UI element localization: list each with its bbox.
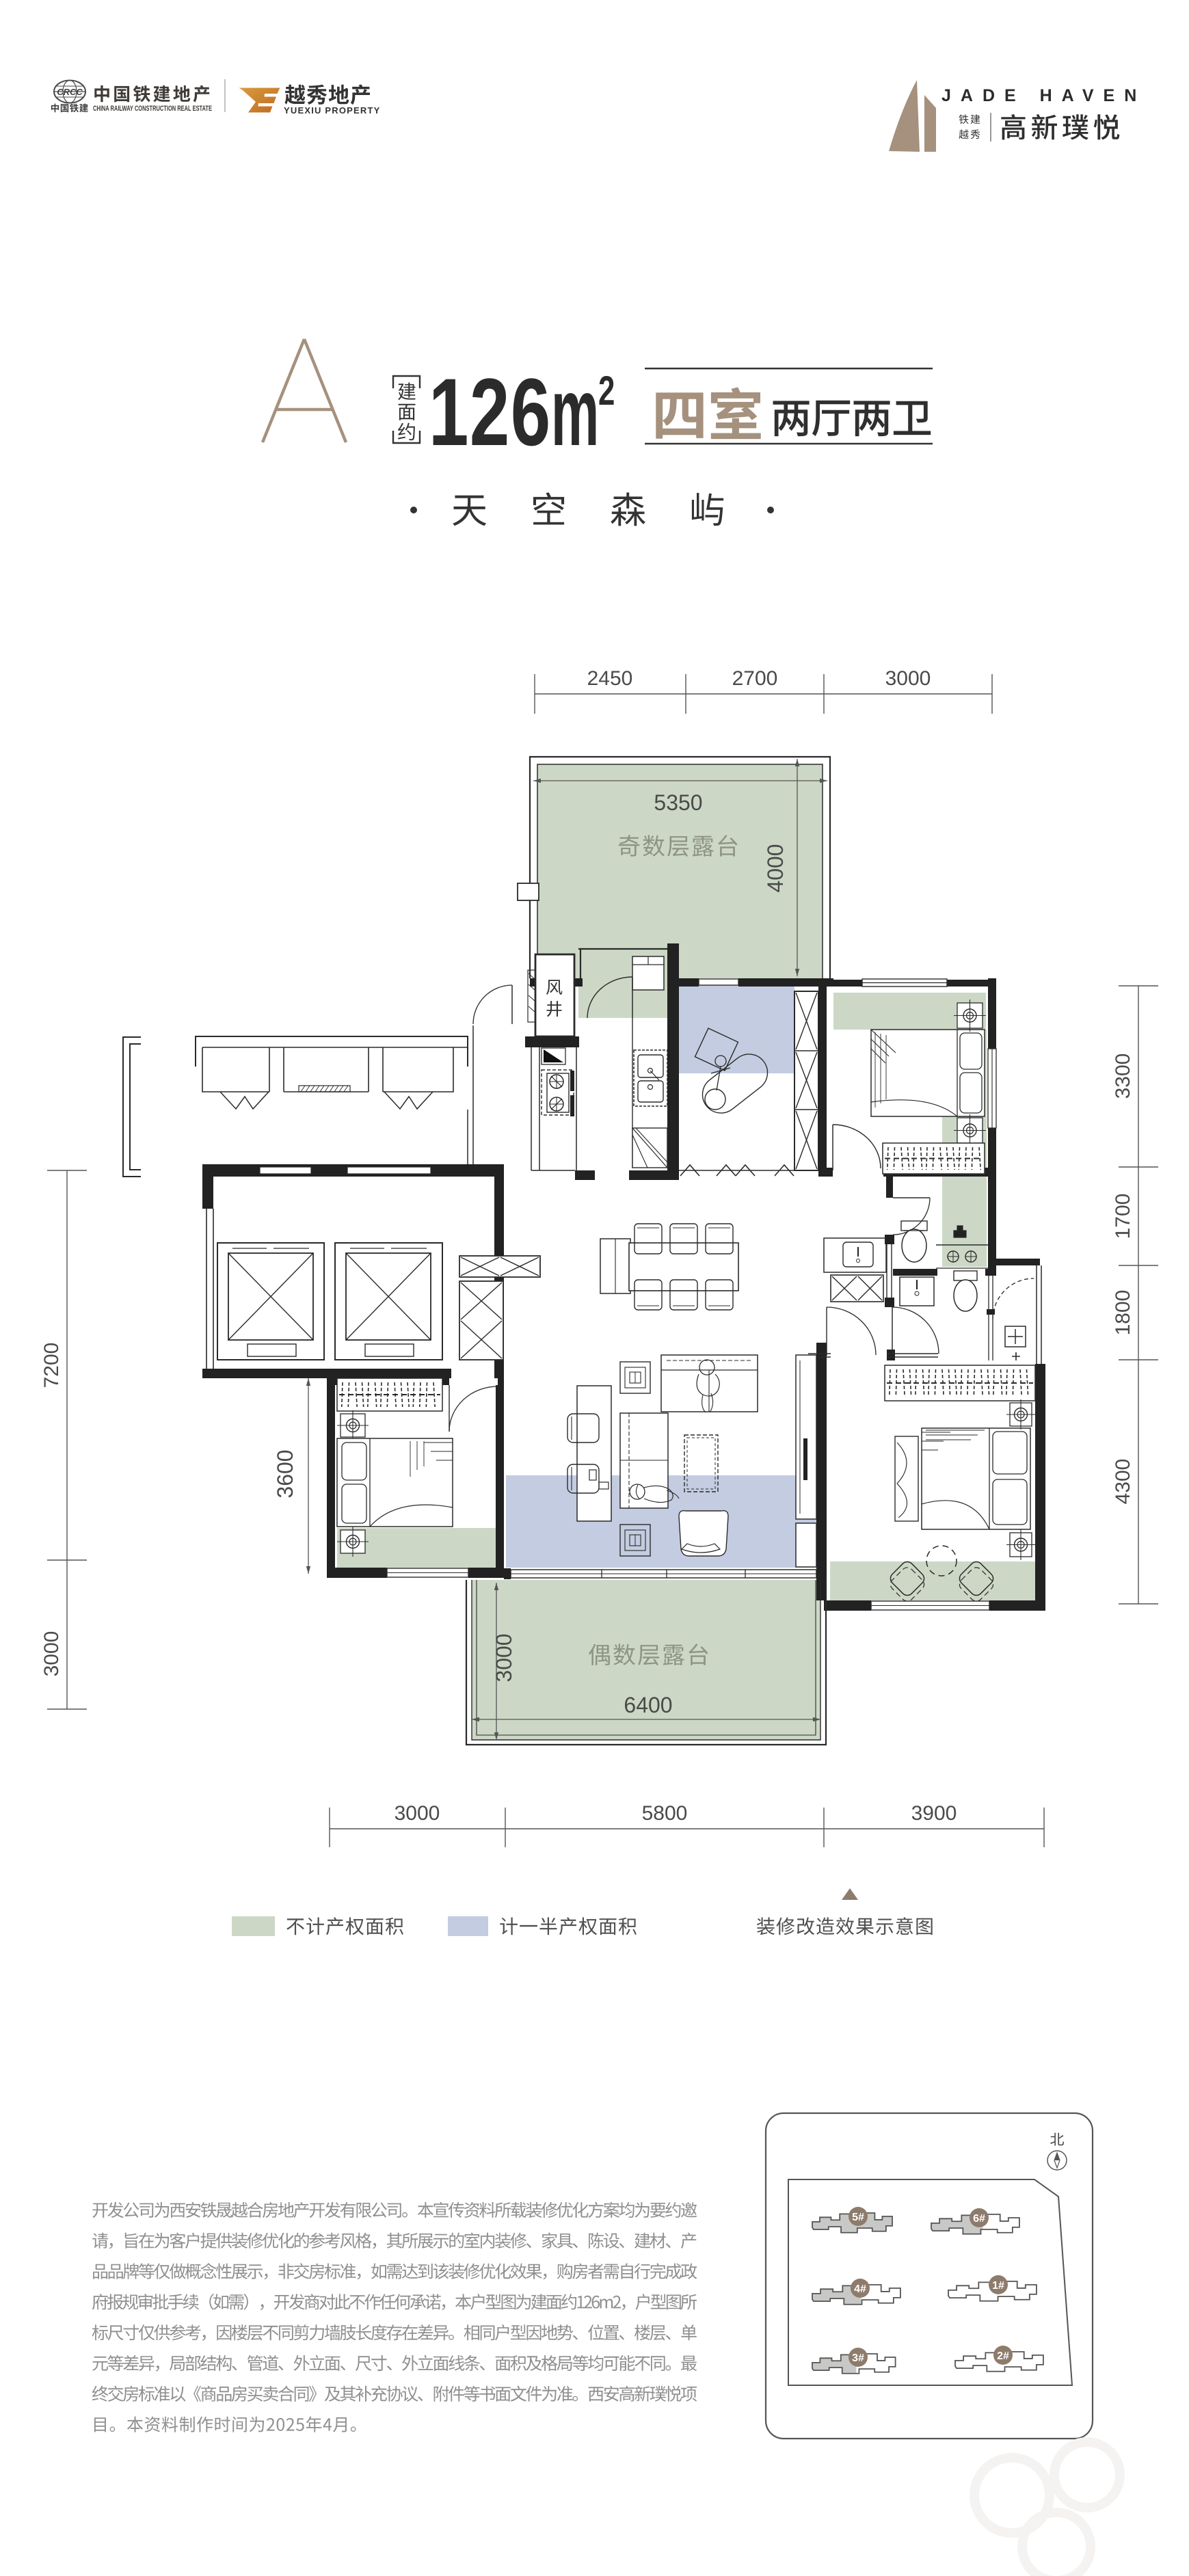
svg-text:1#: 1# — [992, 2280, 1004, 2292]
svg-text:4#: 4# — [854, 2283, 866, 2295]
svg-text:126: 126 — [429, 359, 552, 466]
svg-text:5350: 5350 — [654, 790, 702, 815]
svg-text:7200: 7200 — [40, 1343, 63, 1388]
svg-text:2700: 2700 — [732, 667, 778, 690]
svg-text:2450: 2450 — [587, 667, 633, 690]
svg-text:2#: 2# — [997, 2350, 1009, 2362]
svg-text:3000: 3000 — [395, 1802, 440, 1825]
svg-text:3600: 3600 — [273, 1449, 297, 1498]
svg-text:3000: 3000 — [492, 1633, 516, 1682]
svg-text:2: 2 — [598, 368, 615, 414]
svg-text:YUEXIU PROPERTY: YUEXIU PROPERTY — [284, 105, 381, 116]
svg-text:6#: 6# — [973, 2213, 985, 2225]
svg-text:3000: 3000 — [885, 667, 931, 690]
svg-text:m: m — [551, 359, 599, 466]
svg-text:5#: 5# — [852, 2212, 864, 2223]
svg-text:3900: 3900 — [911, 1802, 957, 1825]
svg-text:1800: 1800 — [1112, 1290, 1134, 1336]
svg-text:3000: 3000 — [40, 1631, 63, 1677]
svg-text:4300: 4300 — [1112, 1459, 1134, 1505]
svg-text:1700: 1700 — [1112, 1194, 1134, 1239]
svg-text:CHINA RAILWAY CONSTRUCTION REA: CHINA RAILWAY CONSTRUCTION REAL ESTATE — [93, 105, 212, 113]
svg-text:3300: 3300 — [1112, 1054, 1134, 1099]
svg-text:CRCC: CRCC — [57, 87, 83, 97]
svg-text:5800: 5800 — [642, 1802, 688, 1825]
svg-text:6400: 6400 — [624, 1693, 672, 1717]
svg-text:3#: 3# — [852, 2352, 864, 2364]
svg-text:4000: 4000 — [763, 844, 788, 892]
svg-text:JADE HAVEN: JADE HAVEN — [941, 86, 1146, 105]
